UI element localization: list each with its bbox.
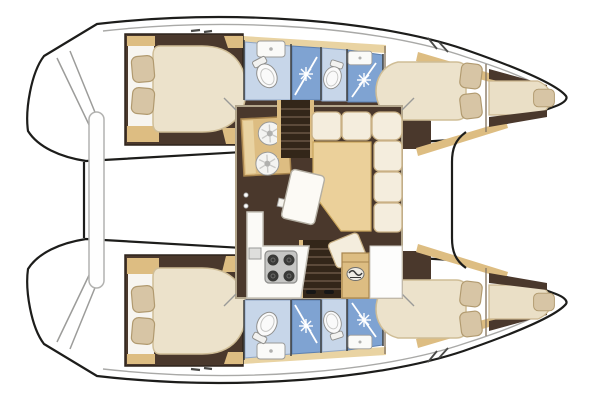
stair-handle [324,290,334,294]
stair-handle [306,290,316,294]
stove-burner [284,271,295,282]
stove-burner [268,271,279,282]
settee-cushion [374,141,402,171]
settee-corner-cushion [372,112,402,140]
round-sink [255,152,279,176]
stove-burner [284,255,295,266]
entry-floor-panel [370,246,402,298]
port-companionway-stairs [277,100,314,158]
galley-small-sink [249,248,261,259]
settee-cushion [374,203,402,232]
settee-cushion [342,112,371,140]
settee-cushion [374,172,402,202]
floor-plan [0,0,600,400]
settee-cushion [312,112,341,140]
floor-plan-canvas [0,0,600,400]
counter-knob [244,193,248,197]
forward-crossbeam [452,132,466,268]
aft-cabinet-unit [342,253,369,298]
counter-knob [244,204,248,208]
saloon [224,98,414,306]
stair-rail [277,100,281,158]
stern-bench-bar [89,112,104,288]
stove-burner [268,255,279,266]
